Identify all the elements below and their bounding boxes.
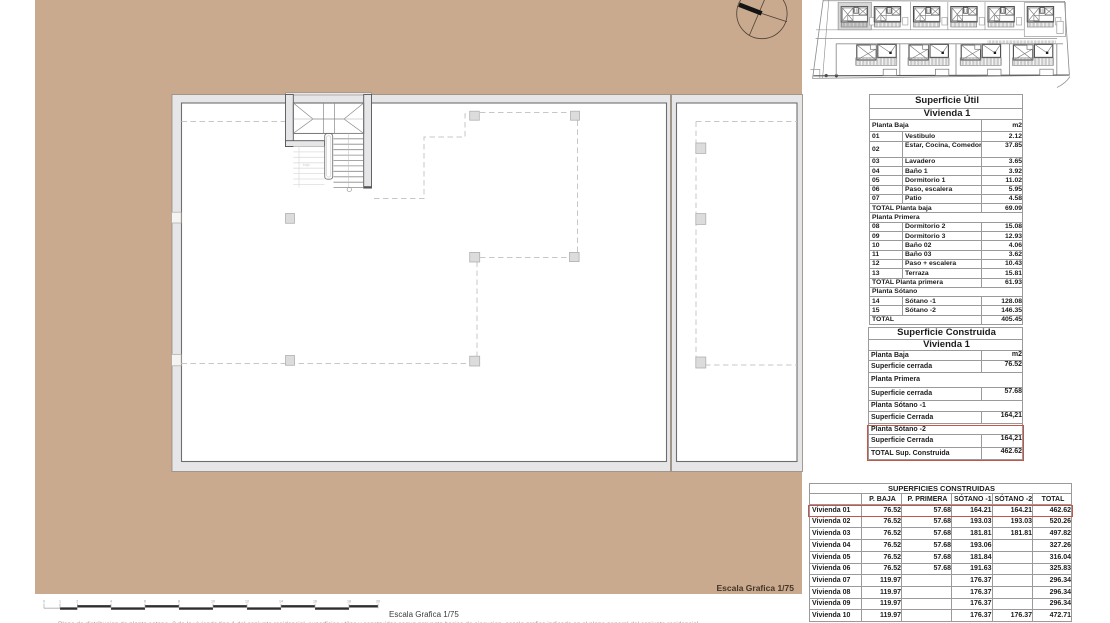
svg-text:6: 6 [144, 600, 146, 604]
svg-text:1: 1 [59, 600, 61, 604]
svg-text:18: 18 [347, 600, 351, 604]
svg-text:20: 20 [376, 600, 380, 604]
svg-text:16: 16 [313, 600, 317, 604]
svg-text:2: 2 [76, 600, 78, 604]
svg-text:14: 14 [279, 600, 283, 604]
svg-text:12: 12 [245, 600, 249, 604]
svg-text:10: 10 [211, 600, 215, 604]
svg-text:baja: baja [303, 163, 310, 167]
svg-text:8: 8 [178, 600, 180, 604]
svg-text:4: 4 [110, 600, 112, 604]
svg-text:0: 0 [43, 600, 45, 604]
